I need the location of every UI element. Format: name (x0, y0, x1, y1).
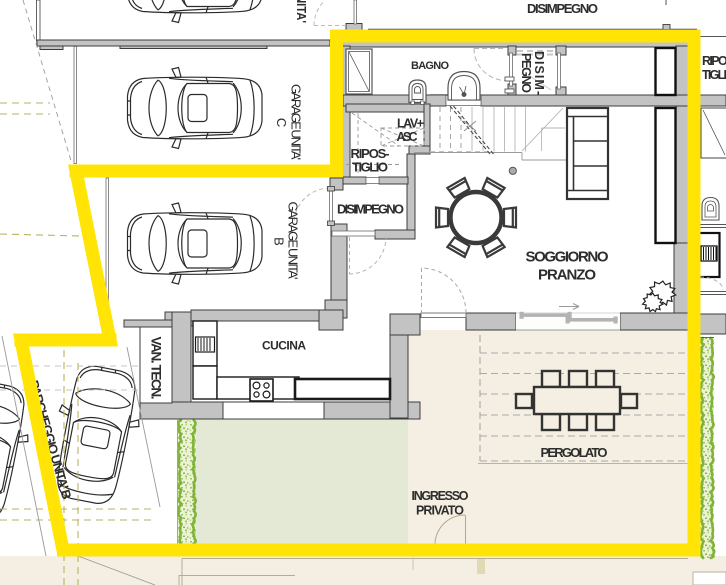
svg-text:PRANZO: PRANZO (538, 267, 596, 284)
svg-text:VAN. TECN.: VAN. TECN. (149, 337, 164, 400)
svg-text:DISIM-: DISIM- (532, 51, 546, 95)
svg-text:PEGNO: PEGNO (519, 53, 533, 93)
svg-text:RIPOS-: RIPOS- (702, 54, 726, 68)
svg-text:ASC: ASC (397, 130, 418, 144)
svg-text:C: C (274, 118, 289, 127)
svg-text:PRIVATO: PRIVATO (416, 504, 464, 518)
svg-text:GARAGE UNITA': GARAGE UNITA' (286, 202, 301, 280)
svg-text:UNITA': UNITA' (294, 0, 309, 23)
svg-text:B: B (272, 237, 287, 246)
svg-text:CUCINA: CUCINA (262, 339, 306, 353)
svg-text:PERGOLATO: PERGOLATO (541, 445, 608, 460)
svg-text:GARAGE UNITA': GARAGE UNITA' (289, 84, 304, 160)
svg-text:TIGLIO: TIGLIO (352, 160, 388, 175)
svg-text:TIGLIO: TIGLIO (702, 68, 726, 82)
svg-text:INGRESSO: INGRESSO (412, 489, 469, 503)
svg-text:DISIMPEGNO: DISIMPEGNO (527, 1, 598, 16)
svg-text:BAGNO: BAGNO (411, 60, 449, 72)
svg-text:DISIMPEGNO: DISIMPEGNO (337, 202, 404, 217)
svg-text:LAV+: LAV+ (397, 117, 424, 131)
svg-text:SOGGIORNO: SOGGIORNO (526, 249, 609, 266)
